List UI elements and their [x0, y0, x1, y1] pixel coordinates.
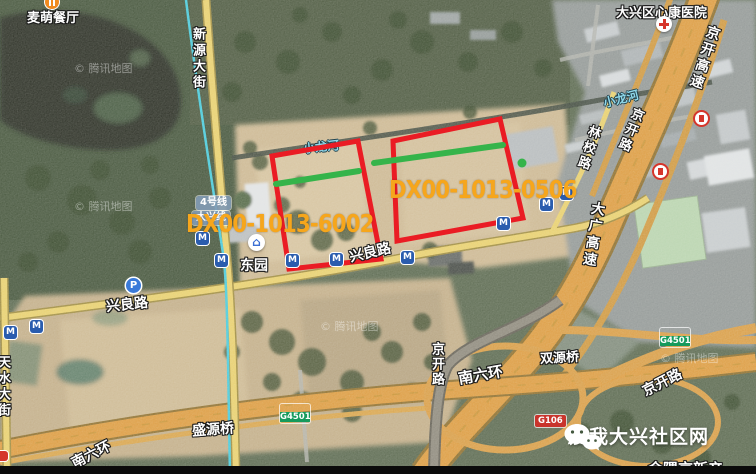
- parcel-2-id-label: DX00-1013-0506: [389, 175, 577, 204]
- xinyuan-street-label: 新源大街: [188, 27, 207, 91]
- satellite-map[interactable]: 小龙河 © 腾讯地图 © 腾讯地图 © 腾讯地图 © 腾讯地图 DX00-101…: [0, 0, 756, 474]
- jingkai-road-label-mid: 京开路: [427, 342, 446, 387]
- gas-station-icon[interactable]: [693, 110, 710, 127]
- metro-icon[interactable]: M: [286, 254, 299, 267]
- bottom-black-bar: [0, 466, 756, 474]
- metro-icon[interactable]: M: [215, 254, 228, 267]
- wechat-icon: [563, 422, 603, 454]
- tianshui-street-label: 天水大街: [0, 355, 12, 419]
- metro-icon[interactable]: M: [330, 253, 343, 266]
- metro-icon[interactable]: M: [4, 326, 17, 339]
- parcel-1-id-label: DX00-1013-6002: [186, 209, 374, 238]
- metro-icon[interactable]: M: [401, 251, 414, 264]
- hospital-icon[interactable]: [656, 16, 672, 32]
- parcel-1-green-line: [276, 171, 359, 184]
- gas-station-icon[interactable]: [652, 163, 669, 180]
- restaurant-label: 麦萌餐厅: [27, 7, 79, 26]
- community-overlay: 爱我大兴社区网: [563, 422, 709, 449]
- poi-icon-partial[interactable]: [0, 451, 8, 461]
- g4501-shield: G4501: [280, 404, 310, 423]
- line4-badge[interactable]: 4号线: [196, 196, 231, 210]
- shuangyuan-bridge-label: 双源桥: [540, 346, 580, 367]
- metro-icon[interactable]: M: [30, 320, 43, 333]
- shengyuan-bridge-label: 盛源桥: [191, 418, 234, 441]
- green-dot: [518, 159, 527, 168]
- parcel-overlays: [0, 0, 756, 474]
- metro-icon[interactable]: M: [497, 217, 510, 230]
- parking-icon[interactable]: P: [126, 278, 141, 293]
- g106-shield: G106: [535, 415, 566, 427]
- g4501-shield: G4501: [660, 328, 690, 347]
- dongyuan-station-label: 东园: [240, 255, 268, 275]
